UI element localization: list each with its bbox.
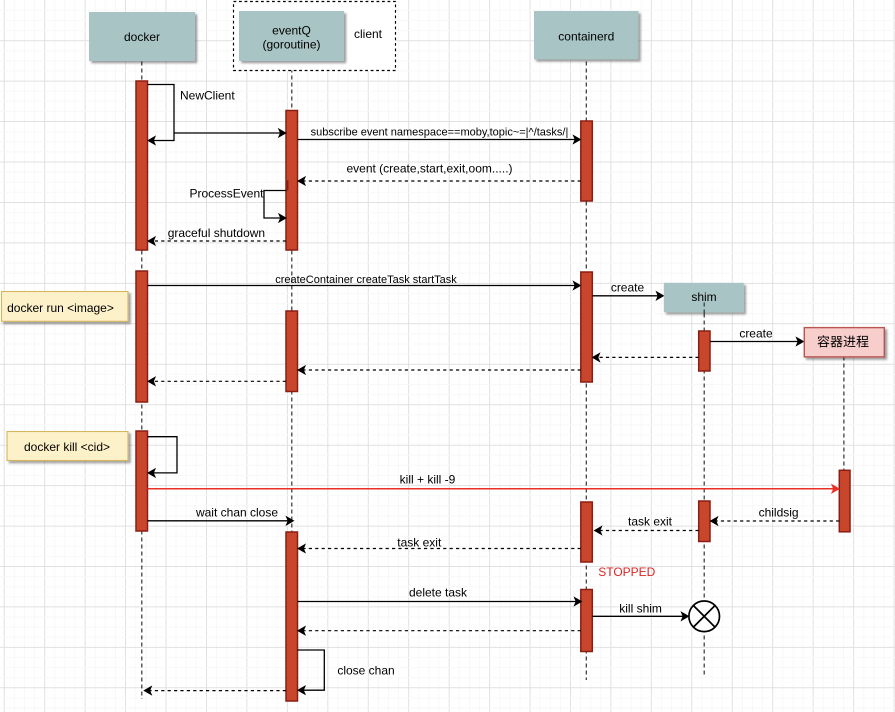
svg-text:delete task: delete task [409,586,468,600]
svg-text:createContainer createTask sta: createContainer createTask startTask [275,274,457,286]
svg-text:wait chan close: wait chan close [195,506,278,520]
svg-text:(goroutine): (goroutine) [262,38,320,52]
svg-text:create: create [611,280,645,294]
svg-text:ProcessEvent: ProcessEvent [189,186,264,200]
svg-text:kill shim: kill shim [619,601,662,615]
svg-text:task exit: task exit [628,515,673,529]
svg-text:graceful shutdown: graceful shutdown [168,226,265,240]
svg-text:docker kill <cid>: docker kill <cid> [24,440,110,454]
svg-text:close chan: close chan [337,664,394,678]
svg-text:event (create,start,exit,oom..: event (create,start,exit,oom.....) [346,162,512,176]
svg-text:kill + kill -9: kill + kill -9 [400,472,456,486]
svg-text:NewClient: NewClient [180,88,235,102]
svg-text:docker run <image>: docker run <image> [7,301,114,315]
svg-text:docker: docker [124,30,160,44]
svg-text:client: client [354,27,383,41]
svg-text:containerd: containerd [558,30,614,44]
svg-text:task exit: task exit [397,536,442,550]
svg-text:subscribe event namespace==mo: subscribe event namespace==moby,topic~=|… [311,126,569,138]
svg-text:eventQ: eventQ [272,24,311,38]
svg-text:STOPPED: STOPPED [598,565,655,579]
svg-text:create: create [739,326,773,340]
svg-text:shim: shim [691,290,716,304]
svg-text:childsig: childsig [759,505,799,519]
